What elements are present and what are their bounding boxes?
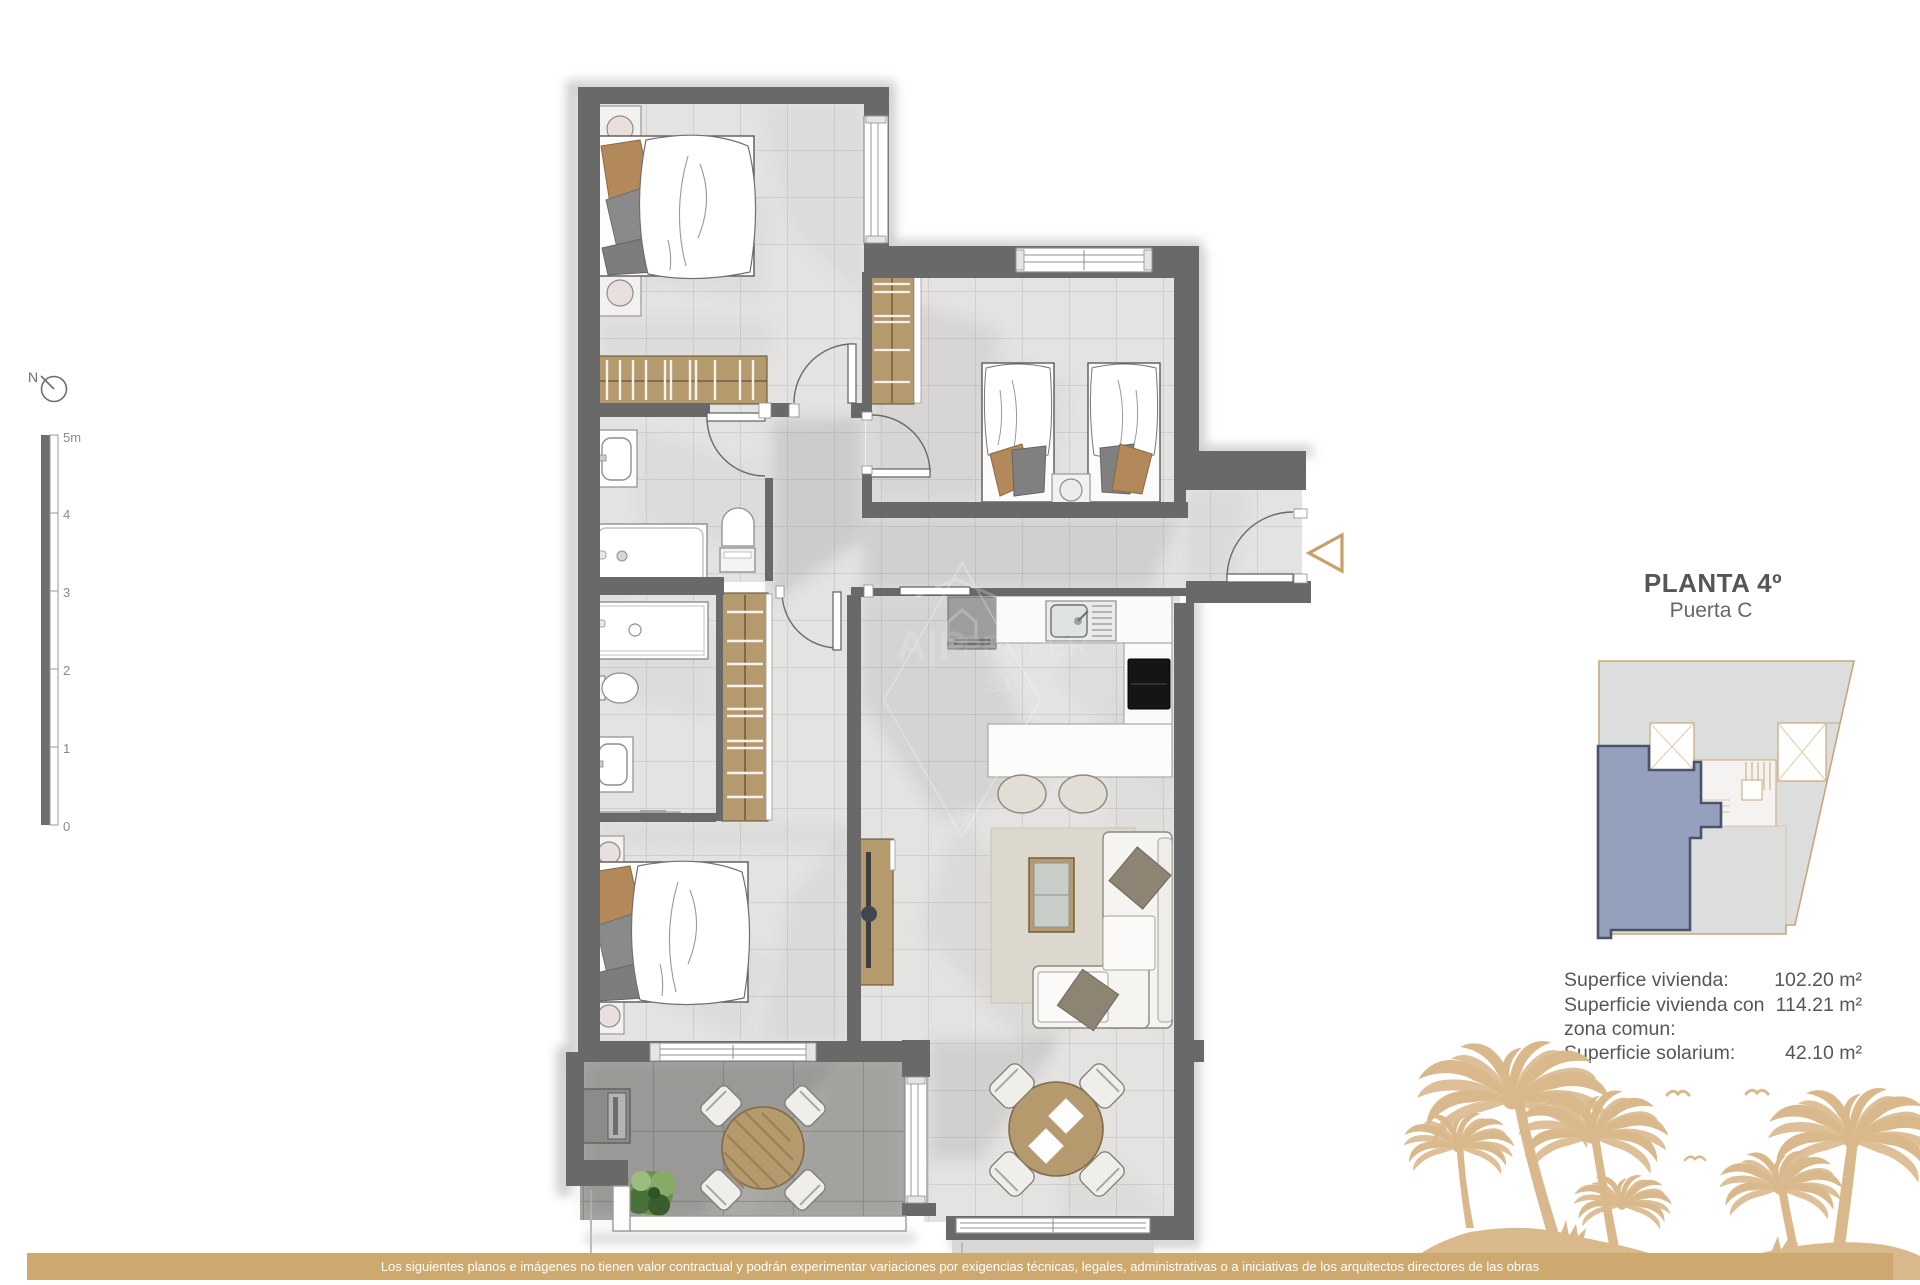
svg-text:Superfice vivienda:: Superfice vivienda: <box>1564 969 1729 991</box>
svg-text:zona comun:: zona comun: <box>1564 1018 1676 1040</box>
svg-text:42.10 m²: 42.10 m² <box>1785 1042 1862 1064</box>
svg-text:SPA: SPA <box>985 671 1043 698</box>
svg-text:Los siguientes planos e imágen: Los siguientes planos e imágenes no tien… <box>381 1259 1540 1274</box>
svg-text:Superficie vivienda con: Superficie vivienda con <box>1564 994 1765 1016</box>
svg-text:PROPER: PROPER <box>962 630 1089 663</box>
svg-text:1: 1 <box>63 741 70 756</box>
svg-text:4: 4 <box>63 507 70 522</box>
svg-text:0: 0 <box>63 819 70 834</box>
svg-text:102.20 m²: 102.20 m² <box>1774 969 1862 991</box>
svg-text:114.21 m²: 114.21 m² <box>1776 994 1863 1016</box>
svg-text:2: 2 <box>63 663 70 678</box>
svg-text:5m: 5m <box>63 430 81 445</box>
svg-text:A|P: A|P <box>896 622 966 670</box>
svg-text:N: N <box>28 369 38 385</box>
svg-text:3: 3 <box>63 585 70 600</box>
svg-text:PLANTA 4º: PLANTA 4º <box>1644 568 1782 598</box>
svg-text:Puerta C: Puerta C <box>1670 599 1753 622</box>
